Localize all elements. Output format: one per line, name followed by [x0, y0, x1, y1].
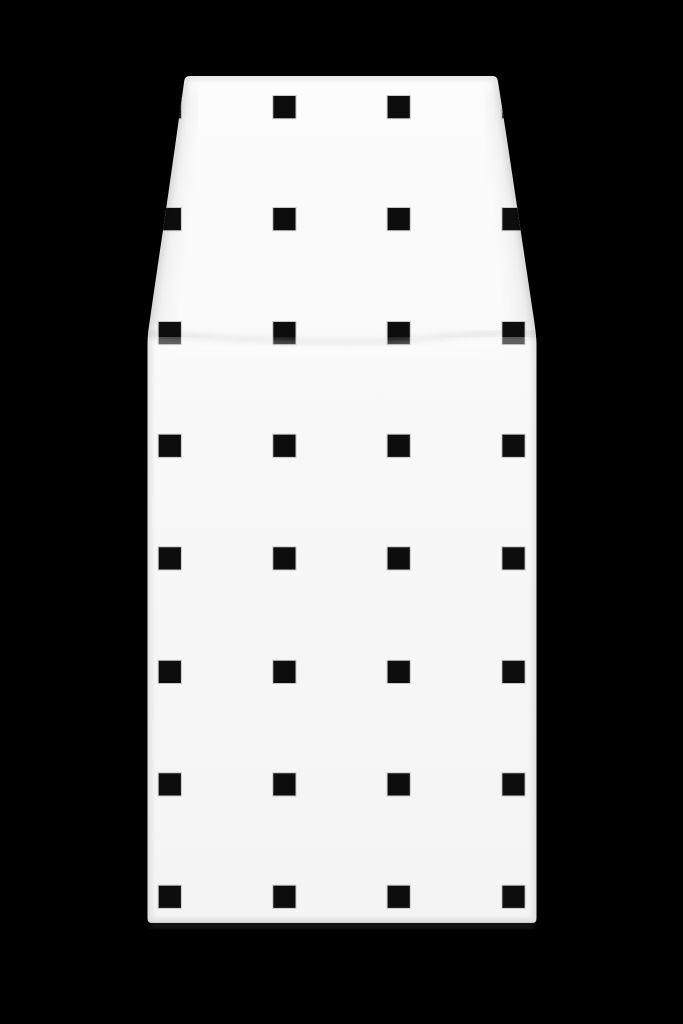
pattern-square: [387, 434, 410, 457]
pattern-square: [387, 660, 410, 683]
photo-stage: [0, 0, 683, 1024]
pattern-square: [502, 885, 525, 908]
pattern-square: [387, 885, 410, 908]
pattern-square: [273, 208, 296, 231]
pattern-square: [387, 96, 410, 119]
pattern-square: [158, 885, 181, 908]
hem-cast-shadow: [150, 923, 535, 928]
pattern-square: [387, 547, 410, 570]
pattern-square: [158, 434, 181, 457]
skirt-shape: [148, 76, 537, 923]
pattern-square: [273, 434, 296, 457]
pattern-square: [158, 773, 181, 796]
pattern-square: [502, 547, 525, 570]
pattern-square: [158, 547, 181, 570]
pattern-square: [273, 96, 296, 119]
pattern-square: [273, 547, 296, 570]
pattern-square: [387, 773, 410, 796]
pattern-square: [273, 660, 296, 683]
pattern-square: [273, 885, 296, 908]
pattern-square: [387, 208, 410, 231]
product-photo: [0, 0, 683, 1024]
pattern-square: [502, 660, 525, 683]
pattern-square: [273, 773, 296, 796]
pattern-square: [502, 434, 525, 457]
pattern-square: [158, 660, 181, 683]
pattern-square: [502, 773, 525, 796]
